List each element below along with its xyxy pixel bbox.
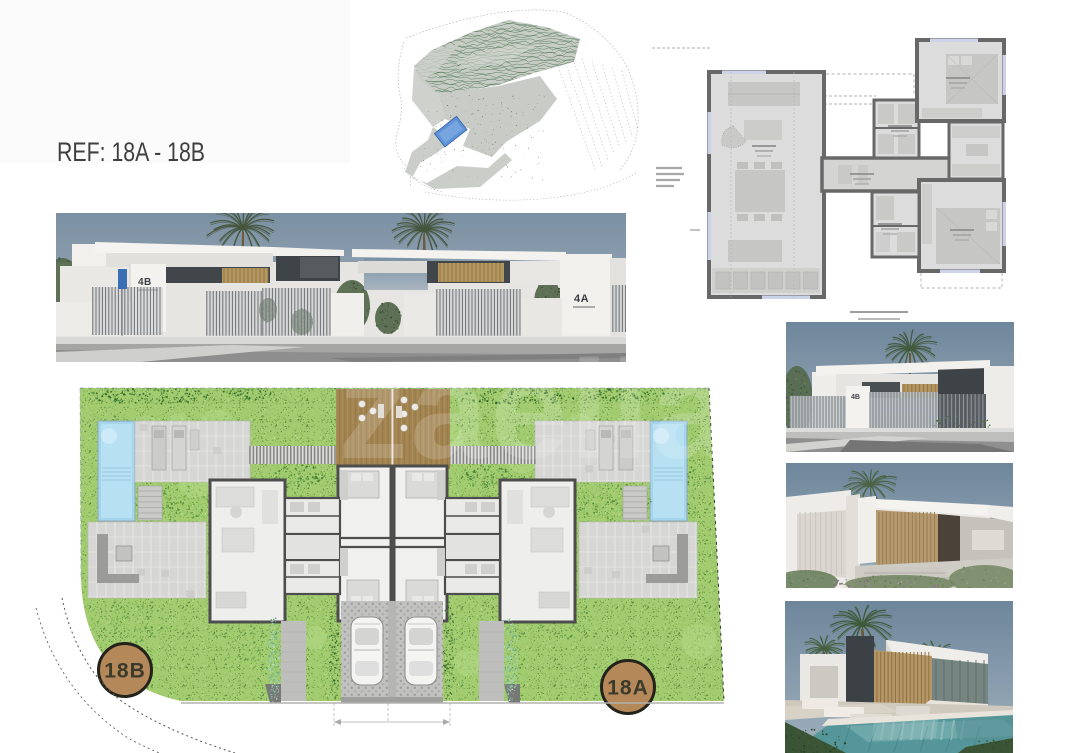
svg-text:4A: 4A xyxy=(574,293,589,305)
svg-text:4B: 4B xyxy=(851,394,860,401)
svg-text:REF: 18A - 18B: REF: 18A - 18B xyxy=(57,137,205,167)
svg-text:4B: 4B xyxy=(138,277,152,288)
svg-text:18B: 18B xyxy=(104,660,146,683)
svg-text:18A: 18A xyxy=(607,677,649,700)
svg-text:zaelia: zaelia xyxy=(338,331,731,488)
